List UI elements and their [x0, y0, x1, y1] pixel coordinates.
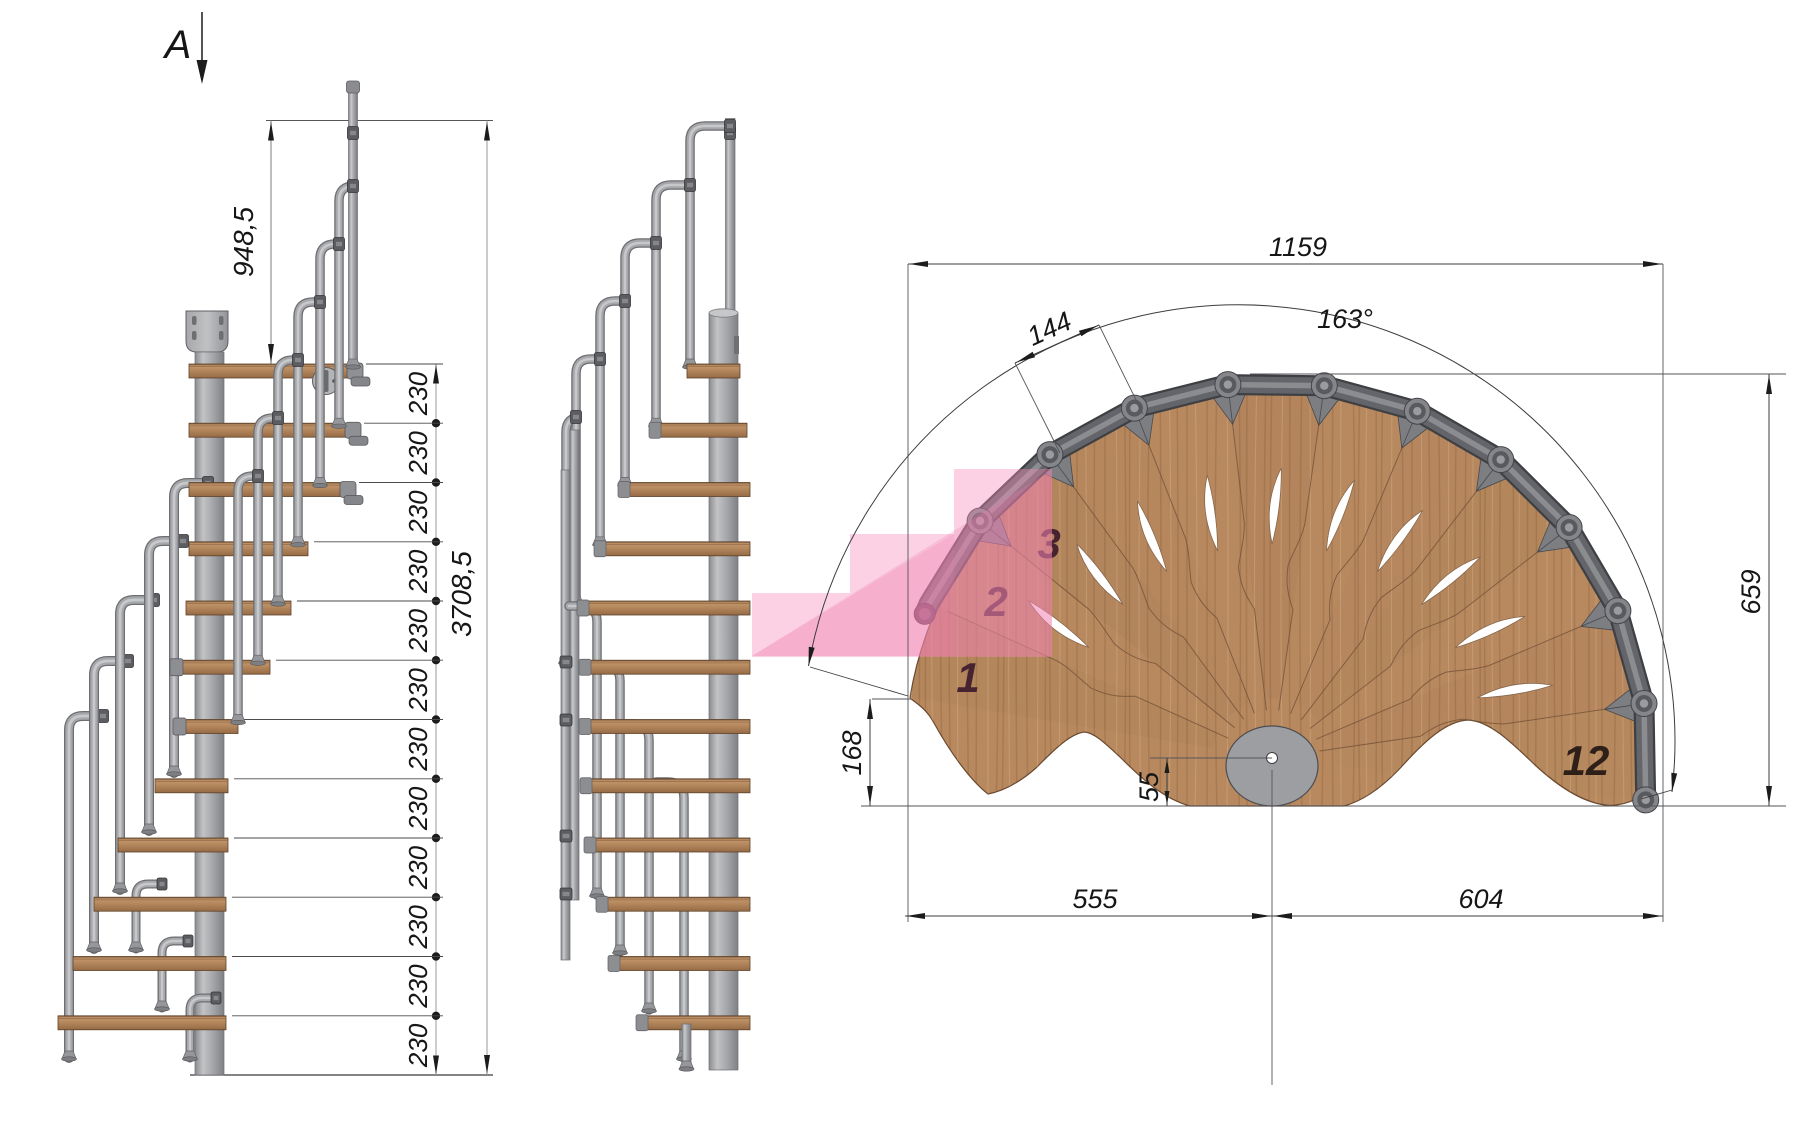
svg-text:A: A [163, 23, 192, 67]
svg-text:55: 55 [1134, 771, 1164, 802]
svg-text:230: 230 [403, 490, 433, 535]
svg-text:230: 230 [403, 549, 433, 594]
svg-text:948,5: 948,5 [228, 207, 259, 277]
svg-text:3708,5: 3708,5 [446, 551, 477, 637]
svg-text:1159: 1159 [1269, 232, 1327, 262]
svg-text:230: 230 [403, 727, 433, 772]
svg-text:230: 230 [403, 371, 433, 416]
svg-text:230: 230 [403, 964, 433, 1009]
svg-text:230: 230 [403, 905, 433, 950]
svg-text:230: 230 [403, 668, 433, 713]
svg-text:163°: 163° [1317, 304, 1373, 334]
svg-text:168: 168 [837, 730, 867, 775]
svg-text:230: 230 [403, 431, 433, 476]
svg-text:604: 604 [1458, 884, 1503, 914]
svg-text:12: 12 [1563, 737, 1610, 784]
svg-text:555: 555 [1072, 884, 1118, 914]
svg-text:230: 230 [403, 845, 433, 890]
svg-text:1: 1 [956, 654, 979, 701]
svg-text:230: 230 [403, 608, 433, 653]
svg-text:659: 659 [1736, 569, 1766, 614]
svg-text:230: 230 [403, 1023, 433, 1068]
svg-text:230: 230 [403, 786, 433, 831]
